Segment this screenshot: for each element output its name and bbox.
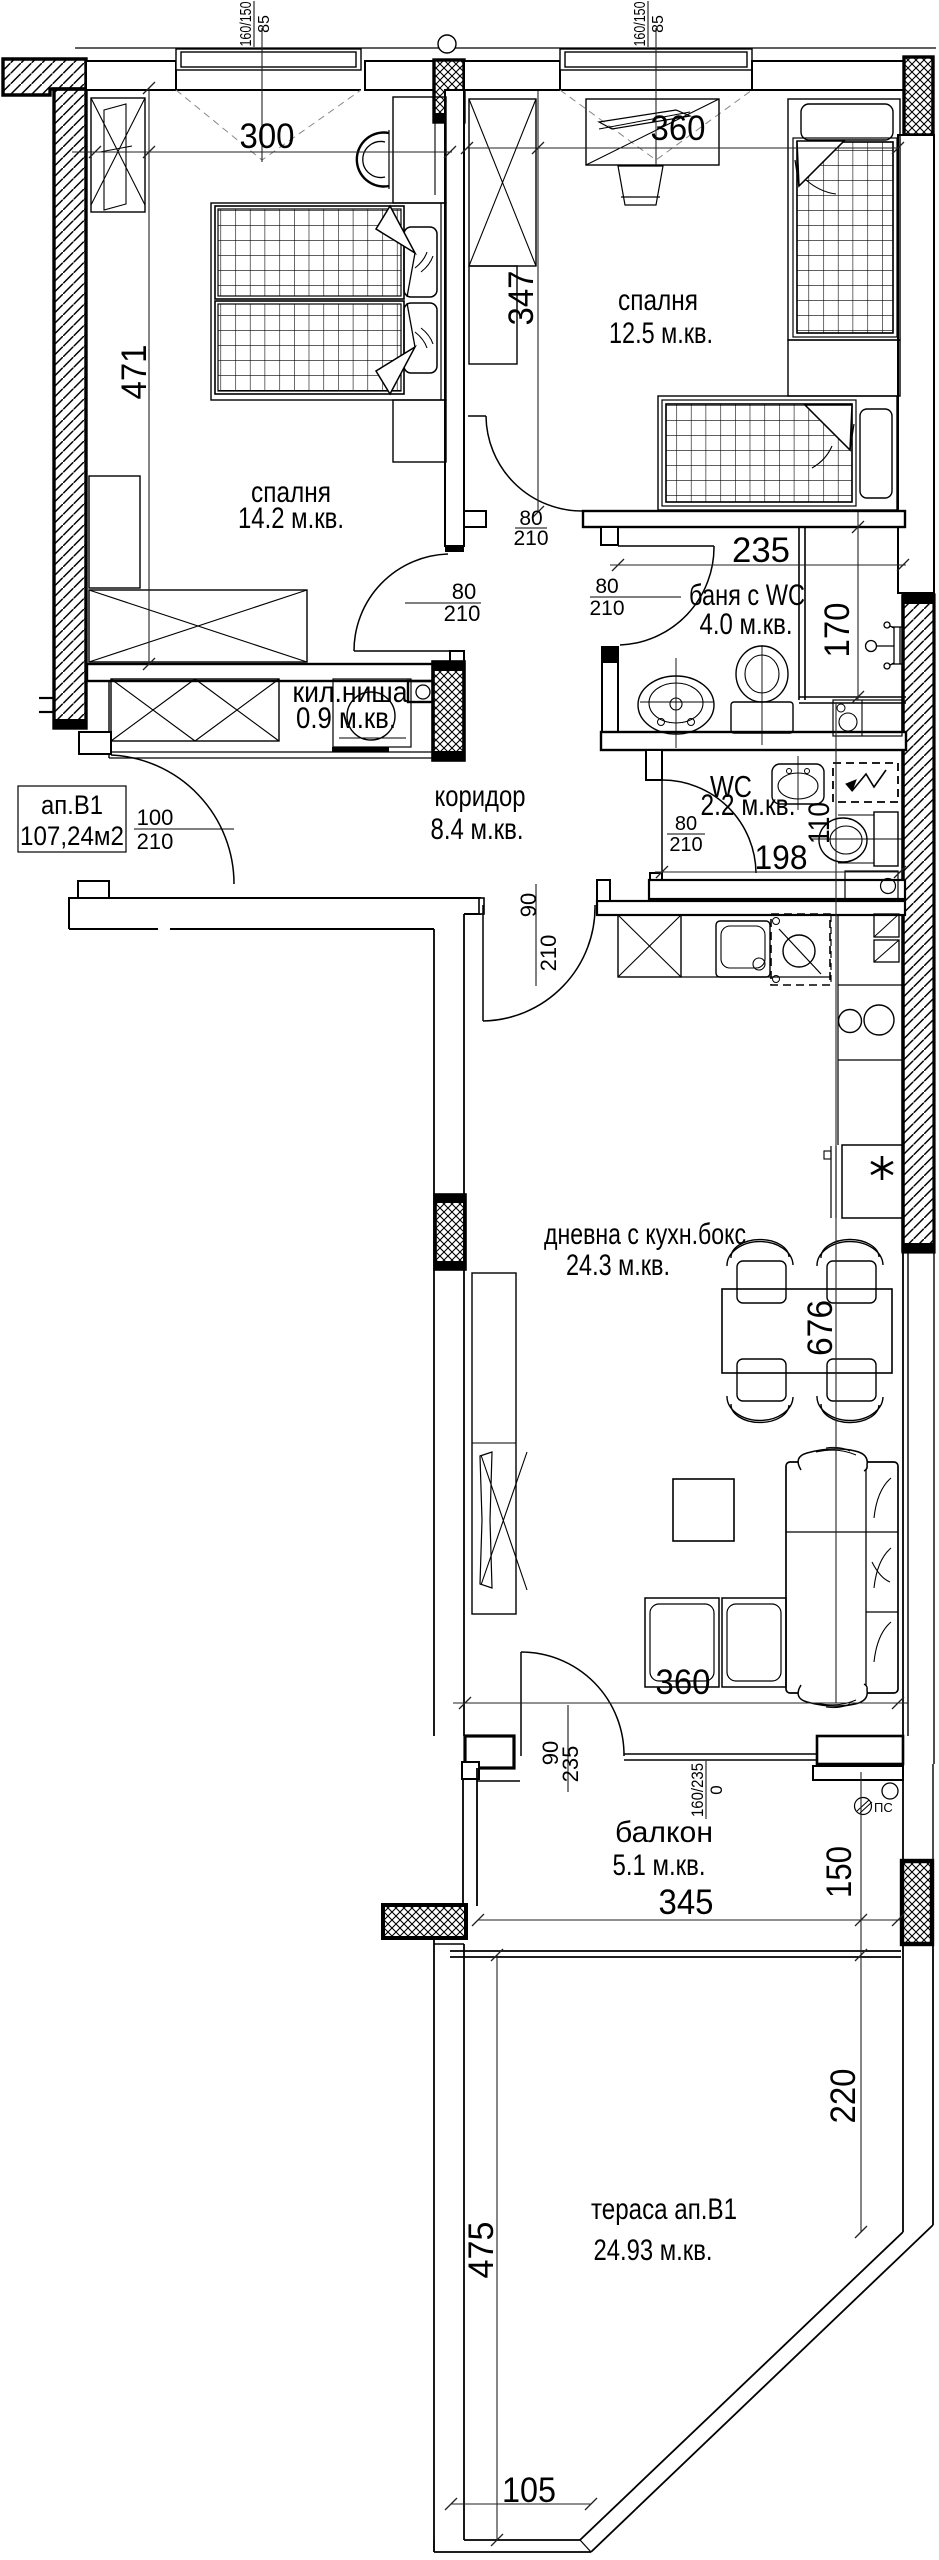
svg-text:коридор: коридор <box>435 780 526 813</box>
svg-text:85: 85 <box>650 15 667 33</box>
svg-text:2.2 м.кв.: 2.2 м.кв. <box>701 789 796 822</box>
svg-text:210: 210 <box>589 597 624 620</box>
svg-text:110: 110 <box>803 802 836 844</box>
svg-text:345: 345 <box>659 1883 714 1922</box>
svg-text:347: 347 <box>502 271 541 326</box>
svg-text:210: 210 <box>669 834 702 856</box>
svg-text:107,24м2: 107,24м2 <box>20 821 124 851</box>
svg-text:24.93 м.кв.: 24.93 м.кв. <box>594 2234 713 2267</box>
svg-text:235: 235 <box>732 531 790 570</box>
svg-text:210: 210 <box>513 527 548 550</box>
svg-text:220: 220 <box>824 2069 863 2124</box>
svg-text:дневна с кухн.бокс: дневна с кухн.бокс <box>544 1218 746 1251</box>
svg-text:105: 105 <box>502 2471 556 2510</box>
svg-text:12.5 м.кв.: 12.5 м.кв. <box>609 317 713 350</box>
svg-text:100: 100 <box>137 805 174 830</box>
svg-text:85: 85 <box>256 15 273 33</box>
svg-text:0: 0 <box>707 1785 726 1794</box>
svg-text:тераса ап.В1: тераса ап.В1 <box>591 2193 737 2226</box>
svg-text:300: 300 <box>240 117 295 156</box>
svg-text:160/235: 160/235 <box>688 1763 707 1817</box>
svg-text:360: 360 <box>656 1663 711 1702</box>
svg-text:0.9 м.кв.: 0.9 м.кв. <box>296 702 396 735</box>
svg-text:170: 170 <box>818 603 857 658</box>
svg-text:198: 198 <box>755 839 808 877</box>
svg-text:14.2 м.кв.: 14.2 м.кв. <box>238 502 344 535</box>
svg-text:80: 80 <box>675 813 697 835</box>
svg-text:балкон: балкон <box>615 1816 713 1849</box>
svg-text:ап.В1: ап.В1 <box>41 790 103 820</box>
svg-text:210: 210 <box>137 829 174 854</box>
svg-text:475: 475 <box>462 2222 501 2279</box>
svg-text:90: 90 <box>516 893 541 917</box>
svg-text:80: 80 <box>595 575 618 598</box>
svg-text:160/150: 160/150 <box>238 1 255 46</box>
svg-text:8.4 м.кв.: 8.4 м.кв. <box>431 813 524 846</box>
svg-text:24.3 м.кв.: 24.3 м.кв. <box>566 1249 670 1282</box>
svg-text:210: 210 <box>536 935 561 972</box>
svg-text:235: 235 <box>558 1746 583 1783</box>
svg-text:5.1 м.кв.: 5.1 м.кв. <box>613 1849 706 1882</box>
svg-text:160/150: 160/150 <box>632 1 649 46</box>
svg-text:360: 360 <box>651 109 706 148</box>
svg-text:471: 471 <box>115 345 154 400</box>
svg-text:210: 210 <box>444 601 481 626</box>
svg-text:4.0 м.кв.: 4.0 м.кв. <box>700 608 793 641</box>
svg-text:676: 676 <box>801 1300 840 1356</box>
svg-text:ПС: ПС <box>874 1800 893 1815</box>
svg-text:спалня: спалня <box>618 284 698 317</box>
svg-text:150: 150 <box>820 1846 859 1898</box>
